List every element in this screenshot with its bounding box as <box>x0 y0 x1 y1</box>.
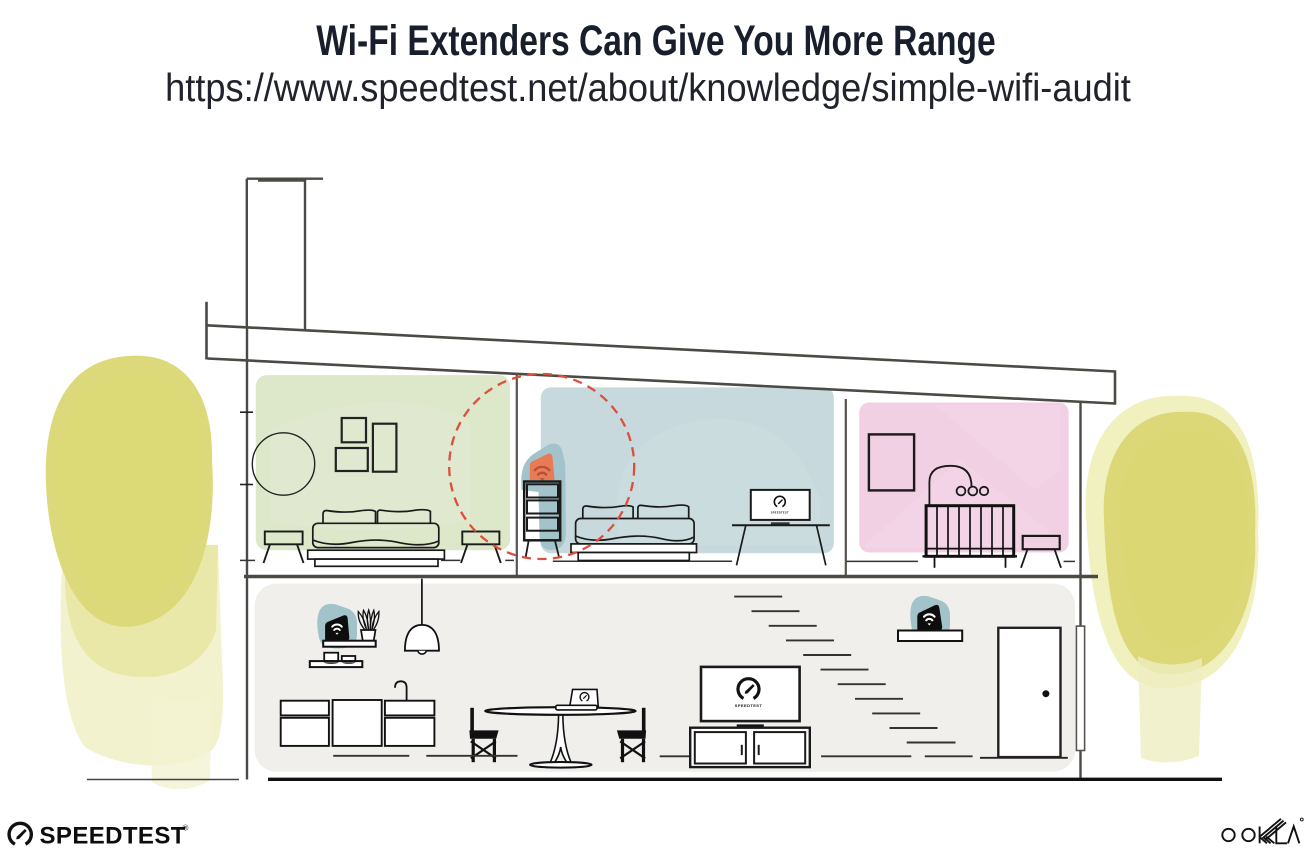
svg-text:®: ® <box>183 824 189 833</box>
svg-text:SPEEDTEST: SPEEDTEST <box>771 511 789 515</box>
svg-text:SPEEDTEST: SPEEDTEST <box>40 823 186 850</box>
svg-text:SPEEDTEST: SPEEDTEST <box>735 703 763 708</box>
